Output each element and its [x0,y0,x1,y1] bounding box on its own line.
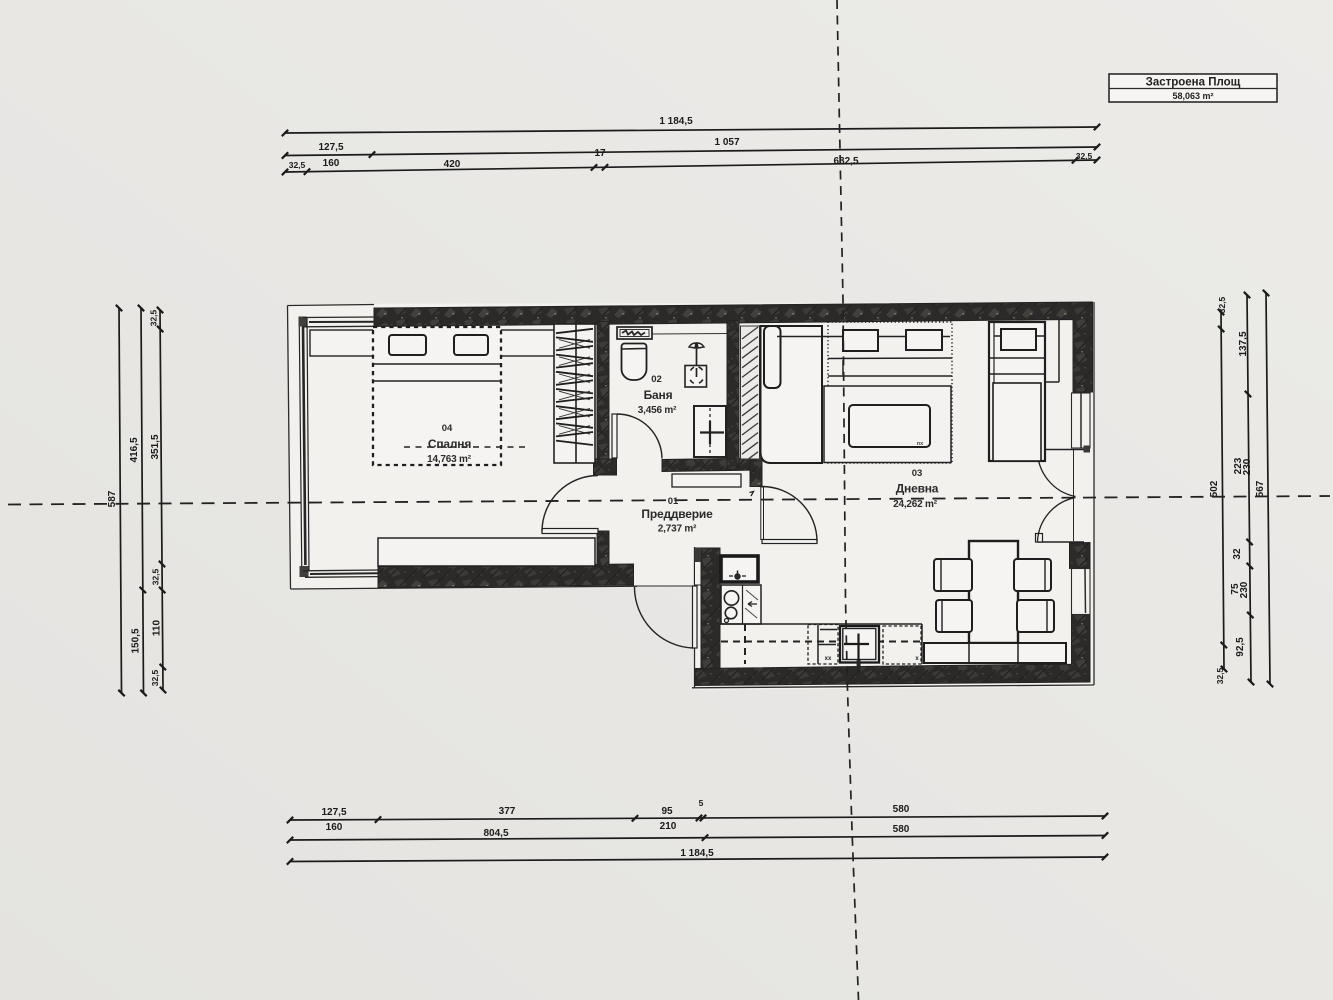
svg-text:02: 02 [651,374,662,385]
svg-text:127,5: 127,5 [318,142,343,153]
svg-text:Преддверие: Преддверие [641,507,713,521]
svg-text:01: 01 [668,496,679,507]
svg-text:377: 377 [499,806,516,817]
svg-text:160: 160 [326,822,343,833]
svg-text:1 184,5: 1 184,5 [680,848,714,859]
svg-text:32,5: 32,5 [1217,296,1227,313]
svg-text:137,5: 137,5 [1238,331,1249,356]
svg-text:32,5: 32,5 [1076,151,1093,161]
svg-text:230: 230 [1239,581,1250,598]
svg-text:95: 95 [661,806,673,817]
svg-text:32,5: 32,5 [149,309,159,326]
svg-text:420: 420 [444,159,461,170]
svg-text:пх: пх [917,441,924,447]
svg-text:58,063 m²: 58,063 m² [1172,91,1213,101]
svg-text:230: 230 [1242,458,1253,475]
svg-text:150,5: 150,5 [131,628,142,653]
svg-text:3,456 m²: 3,456 m² [638,405,677,416]
svg-text:160: 160 [323,158,340,169]
svg-text:682,5: 682,5 [833,156,858,167]
svg-text:416,5: 416,5 [129,437,140,462]
svg-text:32: 32 [1232,548,1243,560]
svg-text:804,5: 804,5 [483,828,508,839]
svg-text:502: 502 [1209,480,1220,497]
svg-text:580: 580 [893,804,910,815]
svg-text:Застроена Площ: Застроена Площ [1146,77,1241,89]
svg-text:351,5: 351,5 [150,434,161,459]
svg-text:32,5: 32,5 [1215,667,1225,684]
svg-text:03: 03 [912,468,923,479]
svg-text:04: 04 [442,423,453,434]
svg-text:хх: хх [825,656,832,662]
svg-text:2,737 m²: 2,737 m² [658,524,697,535]
svg-text:127,5: 127,5 [321,807,346,818]
svg-text:587: 587 [107,490,118,507]
svg-text:32,5: 32,5 [151,568,161,585]
svg-text:32,5: 32,5 [289,160,306,170]
svg-text:Баня: Баня [644,388,673,402]
svg-text:1 057: 1 057 [714,137,739,148]
svg-text:5: 5 [699,798,704,808]
svg-text:92,5: 92,5 [1235,637,1246,657]
svg-text:Спалня: Спалня [428,437,471,451]
svg-text:32,5: 32,5 [150,669,160,686]
svg-text:Дневна: Дневна [896,482,939,496]
svg-text:24,262 m²: 24,262 m² [893,499,938,510]
svg-text:210: 210 [660,821,677,832]
svg-text:580: 580 [893,824,910,835]
svg-text:1 184,5: 1 184,5 [659,116,693,127]
svg-text:17: 17 [594,148,606,159]
svg-text:110: 110 [152,619,163,636]
svg-text:567: 567 [1255,480,1266,497]
svg-text:14,763 m²: 14,763 m² [427,454,472,465]
